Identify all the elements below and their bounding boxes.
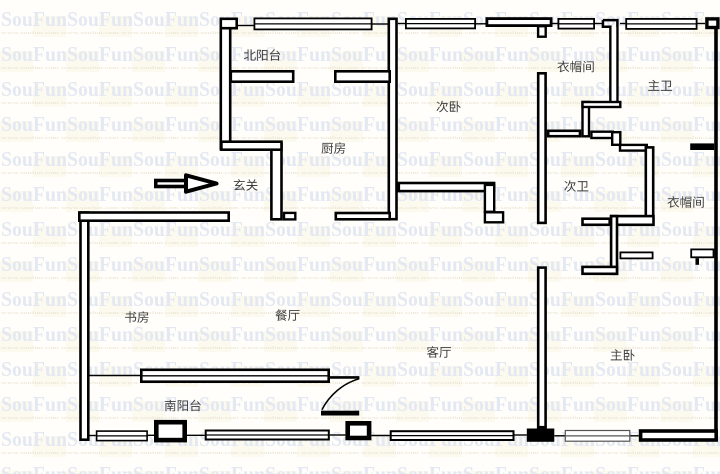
svg-text:SouFunSouFunSouFunSouFunSouFun: SouFunSouFunSouFunSouFunSouFunSouFunSouF…	[1, 287, 720, 311]
svg-text:SouFunSouFunSouFunSouFunSouFun: SouFunSouFunSouFunSouFunSouFunSouFunSouF…	[1, 392, 720, 416]
svg-text:SouFunSouFunSouFunSouFunSouFun: SouFunSouFunSouFunSouFunSouFunSouFunSouF…	[1, 357, 720, 381]
svg-text:SouFunSouFunSouFunSouFunSouFun: SouFunSouFunSouFunSouFunSouFunSouFunSouF…	[1, 147, 720, 171]
svg-text:SouFunSouFunSouFunSouFunSouFun: SouFunSouFunSouFunSouFunSouFunSouFunSouF…	[1, 322, 720, 346]
svg-text:SouFunSouFunSouFunSouFunSouFun: SouFunSouFunSouFunSouFunSouFunSouFunSouF…	[1, 462, 720, 474]
svg-text:SouFunSouFunSouFunSouFunSouFun: SouFunSouFunSouFunSouFunSouFunSouFunSouF…	[1, 182, 720, 206]
